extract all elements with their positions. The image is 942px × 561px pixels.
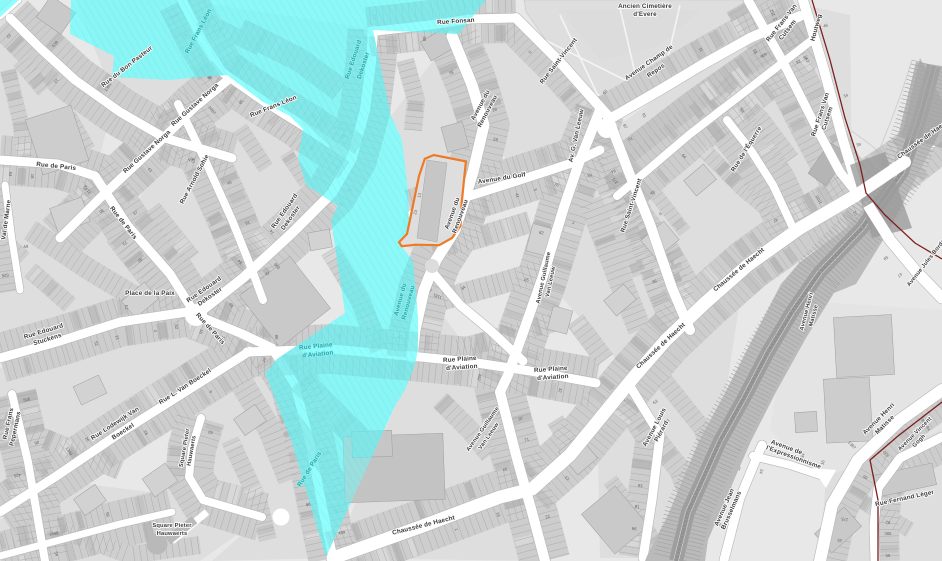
svg-text:Square Pieter: Square Pieter <box>152 523 192 529</box>
svg-text:Place de la Paix: Place de la Paix <box>125 290 175 297</box>
svg-text:56: 56 <box>886 553 892 558</box>
svg-text:365: 365 <box>884 531 892 536</box>
svg-text:Hauwaerts: Hauwaerts <box>157 531 188 537</box>
svg-text:Ancien Cimetière: Ancien Cimetière <box>618 3 672 10</box>
svg-text:98: 98 <box>274 334 279 340</box>
svg-text:d'Evere: d'Evere <box>633 11 657 18</box>
